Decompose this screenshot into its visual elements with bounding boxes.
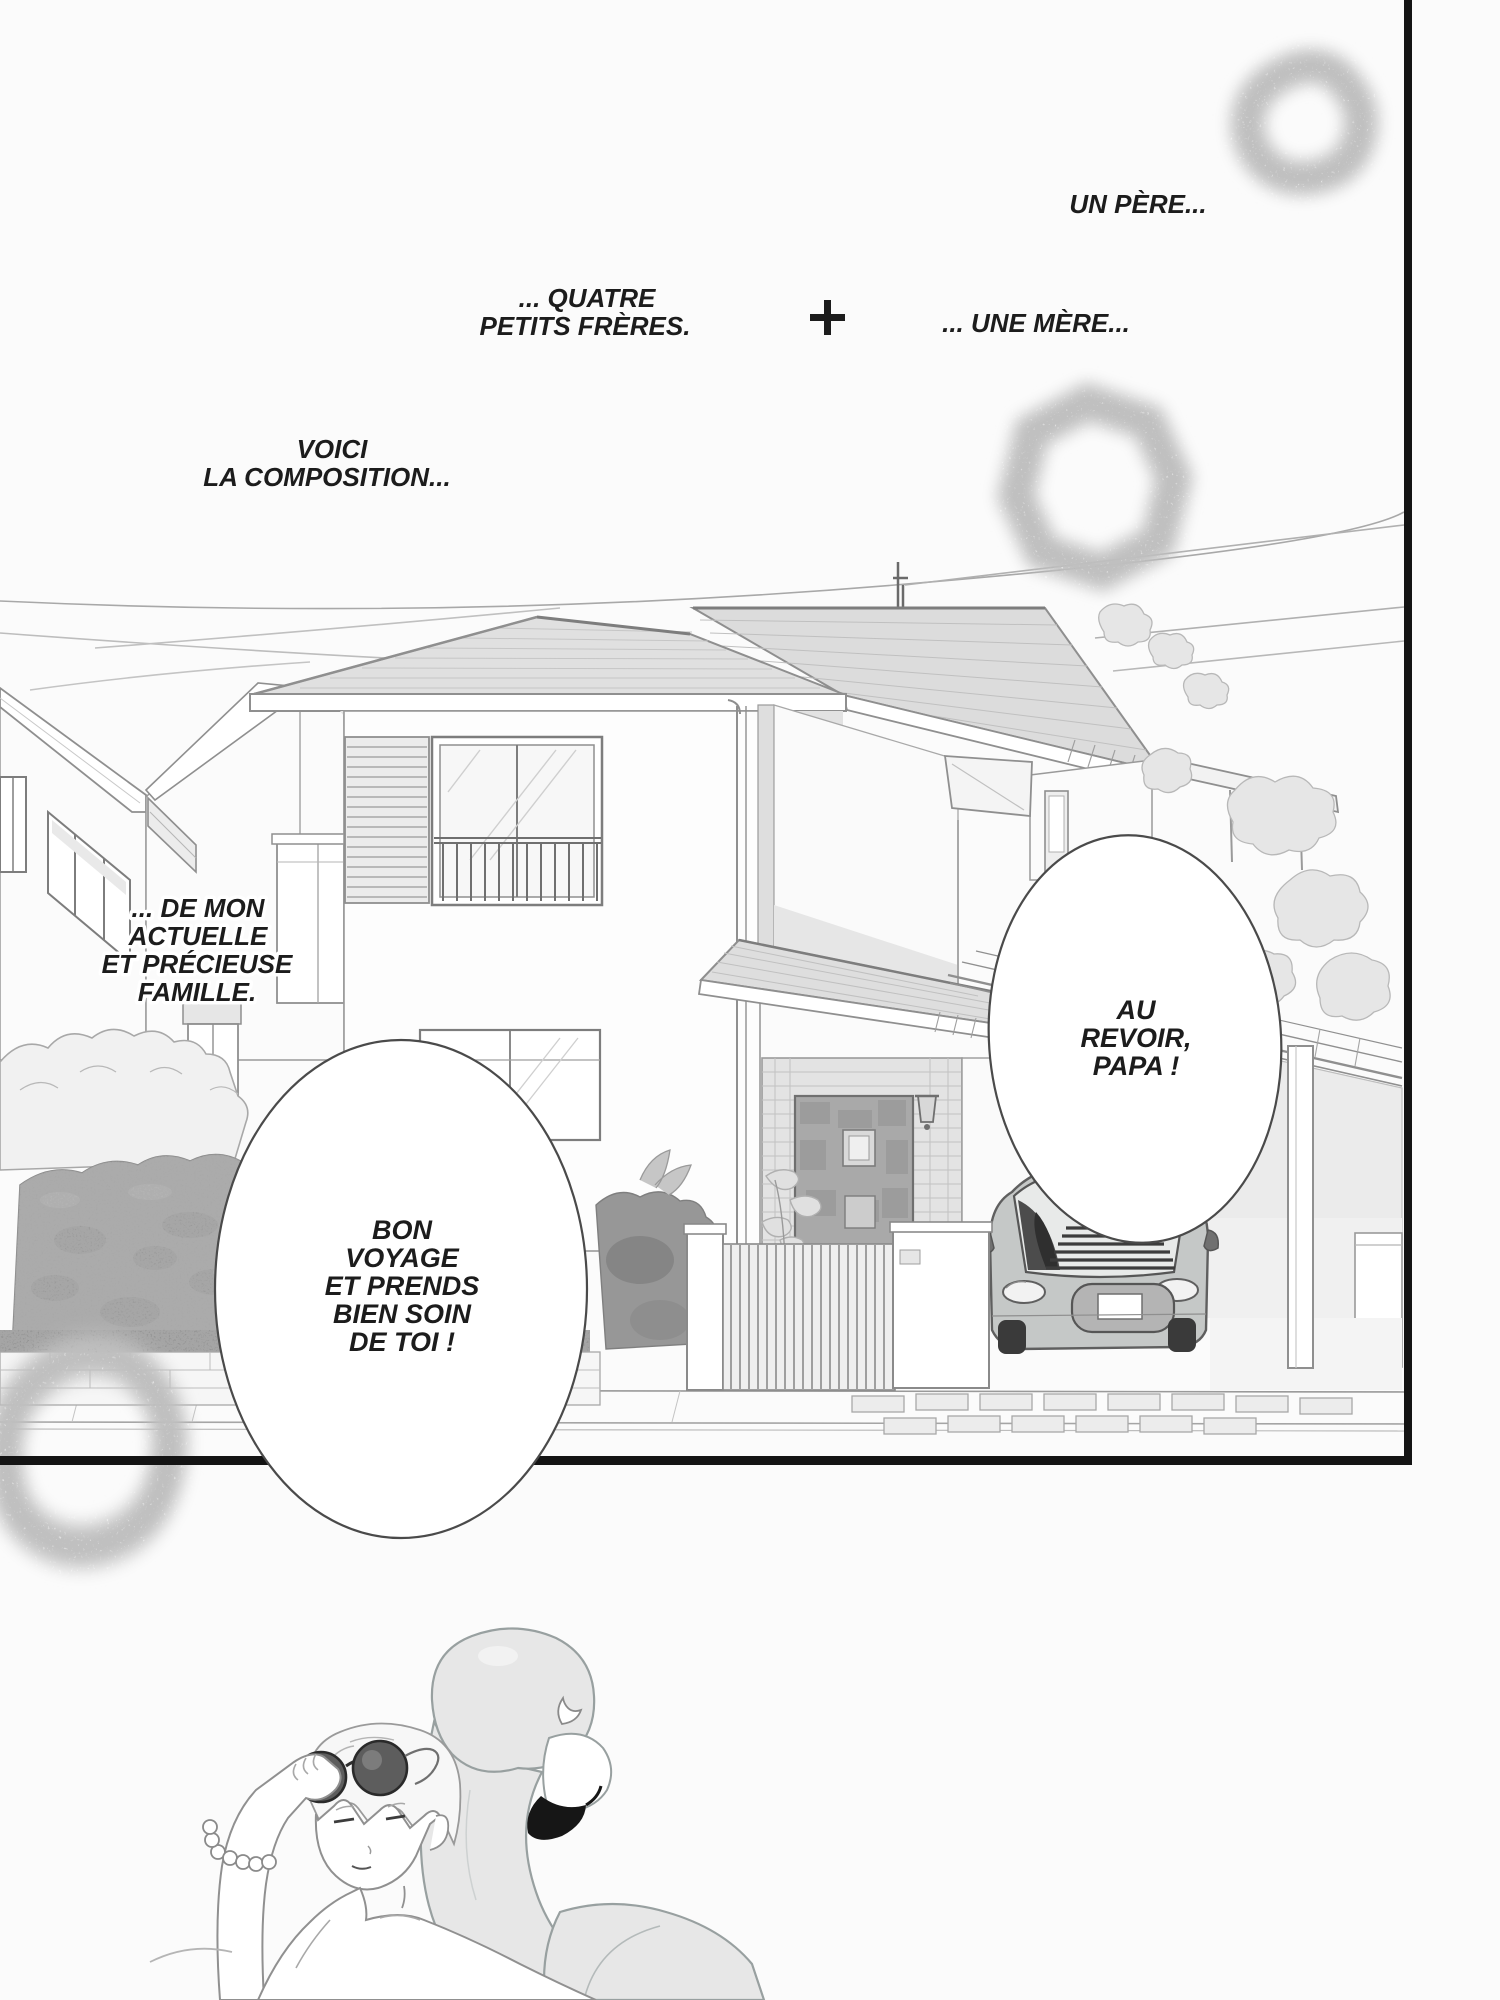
svg-text:DE TOI !: DE TOI ! bbox=[349, 1327, 455, 1357]
svg-text:LA COMPOSITION...: LA COMPOSITION... bbox=[203, 462, 450, 492]
svg-text:FAMILLE.: FAMILLE. bbox=[138, 977, 256, 1007]
svg-text:BIEN SOIN: BIEN SOIN bbox=[333, 1299, 472, 1329]
svg-text:... QUATRE: ... QUATRE bbox=[519, 283, 656, 313]
svg-text:PETITS FRÈRES.: PETITS FRÈRES. bbox=[480, 311, 691, 341]
svg-text:PAPA !: PAPA ! bbox=[1093, 1051, 1180, 1081]
svg-text:UN PÈRE...: UN PÈRE... bbox=[1069, 189, 1206, 219]
svg-text:ET PRENDS: ET PRENDS bbox=[325, 1271, 480, 1301]
svg-text:BON: BON bbox=[372, 1215, 433, 1245]
svg-text:VOYAGE: VOYAGE bbox=[345, 1243, 460, 1273]
svg-text:VOICI: VOICI bbox=[297, 434, 369, 464]
svg-text:REVOIR,: REVOIR, bbox=[1080, 1023, 1191, 1053]
svg-text:... UNE MÈRE...: ... UNE MÈRE... bbox=[942, 308, 1130, 338]
svg-text:... DE MON: ... DE MON bbox=[132, 893, 266, 923]
svg-text:ET PRÉCIEUSE: ET PRÉCIEUSE bbox=[102, 949, 293, 979]
svg-text:ACTUELLE: ACTUELLE bbox=[128, 921, 268, 951]
svg-text:AU: AU bbox=[1116, 995, 1157, 1025]
